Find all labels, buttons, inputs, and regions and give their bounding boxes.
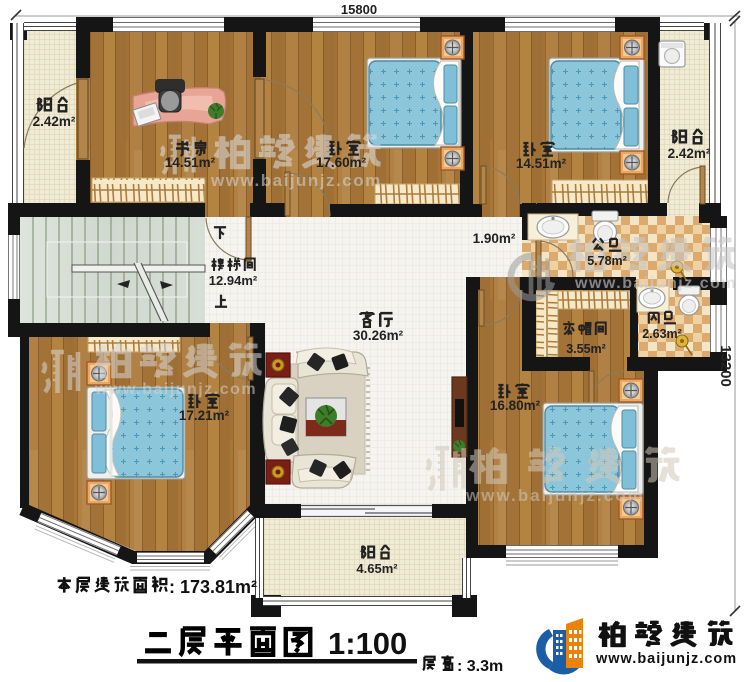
svg-text:2.42m²: 2.42m² [33, 114, 76, 129]
svg-text:1:100: 1:100 [328, 626, 407, 661]
svg-text:5.78m²: 5.78m² [587, 254, 627, 268]
svg-text:17.60m²: 17.60m² [316, 155, 367, 170]
svg-text:13200: 13200 [717, 345, 734, 387]
svg-text:17.21m²: 17.21m² [179, 408, 230, 423]
svg-text:: 3.3m: : 3.3m [457, 658, 503, 675]
svg-text:2.63m²: 2.63m² [642, 327, 682, 341]
svg-text:www.baijunjz.com: www.baijunjz.com [210, 171, 382, 190]
svg-text:15800: 15800 [341, 2, 377, 17]
svg-text:12.94m²: 12.94m² [209, 273, 258, 288]
svg-text:: 173.81m²: : 173.81m² [169, 577, 257, 597]
svg-text:1.90m²: 1.90m² [473, 231, 516, 246]
svg-text:14.51m²: 14.51m² [516, 156, 567, 171]
svg-text:14.51m²: 14.51m² [165, 155, 216, 170]
svg-text:www.baijunjz.com: www.baijunjz.com [595, 651, 737, 667]
svg-text:4.65m²: 4.65m² [356, 561, 398, 576]
svg-text:16.80m²: 16.80m² [490, 398, 541, 413]
svg-text:www.baijunjz.com: www.baijunjz.com [94, 381, 257, 398]
svg-text:3.55m²: 3.55m² [566, 342, 606, 356]
svg-text:www.baijunjz.com: www.baijunjz.com [465, 486, 645, 505]
svg-text:30.26m²: 30.26m² [353, 328, 404, 343]
svg-text:www.baijunjz.com: www.baijunjz.com [574, 275, 737, 292]
svg-text:2.42m²: 2.42m² [668, 146, 711, 161]
